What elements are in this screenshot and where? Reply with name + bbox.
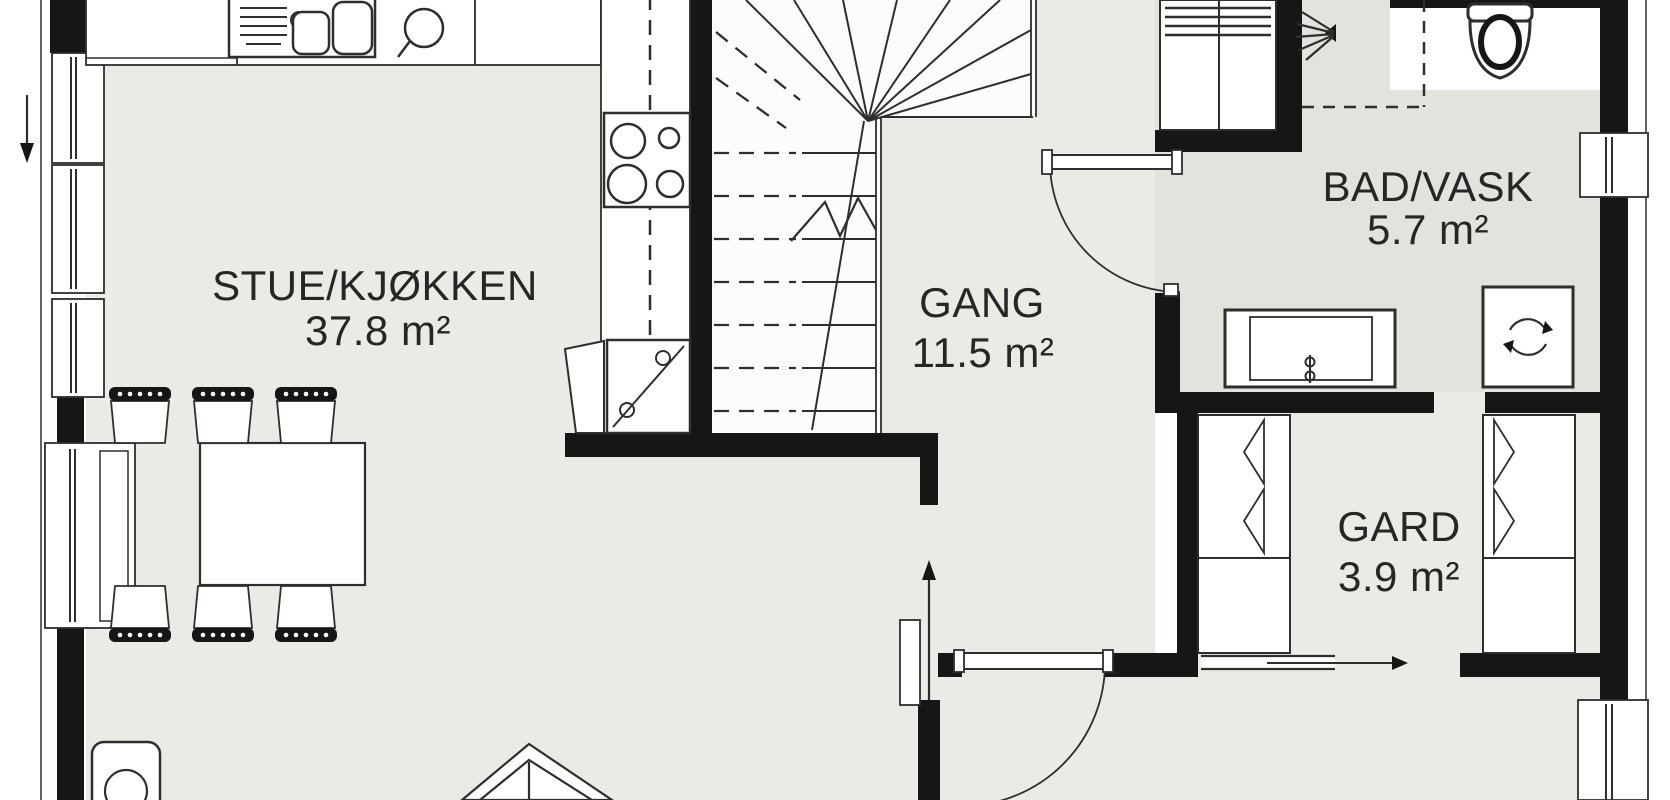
closet-shelves bbox=[1160, 0, 1276, 130]
floor-plan-drawing: STUE/KJØKKEN 37.8 m² GANG 11.5 m² BAD/VA… bbox=[0, 0, 1670, 800]
floor-stair-fan bbox=[881, 0, 1033, 117]
wall-closet-bottom bbox=[1155, 130, 1302, 152]
wall-under-stair bbox=[565, 433, 938, 457]
chair bbox=[275, 586, 337, 642]
room-area-bad: 5.7 m² bbox=[1367, 206, 1489, 253]
wall-bad-bottom-b bbox=[1485, 392, 1600, 413]
floor-gang-top bbox=[1037, 0, 1160, 130]
floor-gang bbox=[881, 117, 1155, 653]
room-label-bad: BAD/VASK bbox=[1323, 163, 1534, 210]
wall-bad-bottom-a bbox=[1155, 392, 1434, 413]
dishwasher-icon bbox=[607, 340, 690, 433]
wall-left-top bbox=[50, 0, 86, 53]
cooktop-icon bbox=[604, 113, 690, 207]
room-area-gang: 11.5 m² bbox=[912, 329, 1055, 376]
wall-east-mid bbox=[1600, 197, 1628, 700]
wardrobe-left bbox=[1198, 415, 1290, 653]
wall-closet-east bbox=[1276, 0, 1302, 152]
wall-left-mid bbox=[57, 397, 84, 443]
stove-icon bbox=[92, 742, 160, 800]
chair bbox=[192, 387, 254, 443]
chair bbox=[192, 586, 254, 642]
chair bbox=[109, 387, 171, 443]
window-entry-east bbox=[1578, 700, 1648, 800]
kitchen-sink-icon bbox=[229, 0, 375, 57]
wall-east-top bbox=[1600, 0, 1628, 133]
wall-stub-gang bbox=[920, 457, 938, 505]
window-bad-east bbox=[1580, 133, 1648, 197]
chair bbox=[275, 387, 337, 443]
floor-plan-canvas: STUE/KJØKKEN 37.8 m² GANG 11.5 m² BAD/VA… bbox=[0, 0, 1670, 800]
wall-bottom-stub bbox=[918, 700, 940, 800]
room-label-stue: STUE/KJØKKEN bbox=[212, 262, 538, 309]
room-label-gang: GANG bbox=[919, 279, 1045, 326]
wall-entry-c bbox=[1460, 653, 1600, 677]
room-area-stue: 37.8 m² bbox=[305, 307, 451, 354]
wall-left-bottom bbox=[57, 628, 84, 800]
window-left-2 bbox=[52, 165, 104, 293]
wall-kitchen-stair bbox=[690, 0, 712, 433]
window-left-1 bbox=[52, 53, 104, 163]
vanity-icon bbox=[1225, 310, 1395, 387]
wall-gang-gard bbox=[1177, 393, 1198, 653]
wall-thin-partition bbox=[900, 620, 920, 705]
washing-machine-icon bbox=[1483, 287, 1573, 387]
chair bbox=[109, 586, 171, 642]
window-left-3 bbox=[52, 299, 104, 397]
exterior-arrow-icon bbox=[20, 95, 34, 163]
room-label-gard: GARD bbox=[1337, 503, 1460, 550]
dining-table bbox=[200, 443, 365, 585]
wall-entry-b bbox=[1105, 653, 1198, 677]
room-area-gard: 3.9 m² bbox=[1338, 553, 1460, 600]
wardrobe-right bbox=[1483, 415, 1575, 653]
